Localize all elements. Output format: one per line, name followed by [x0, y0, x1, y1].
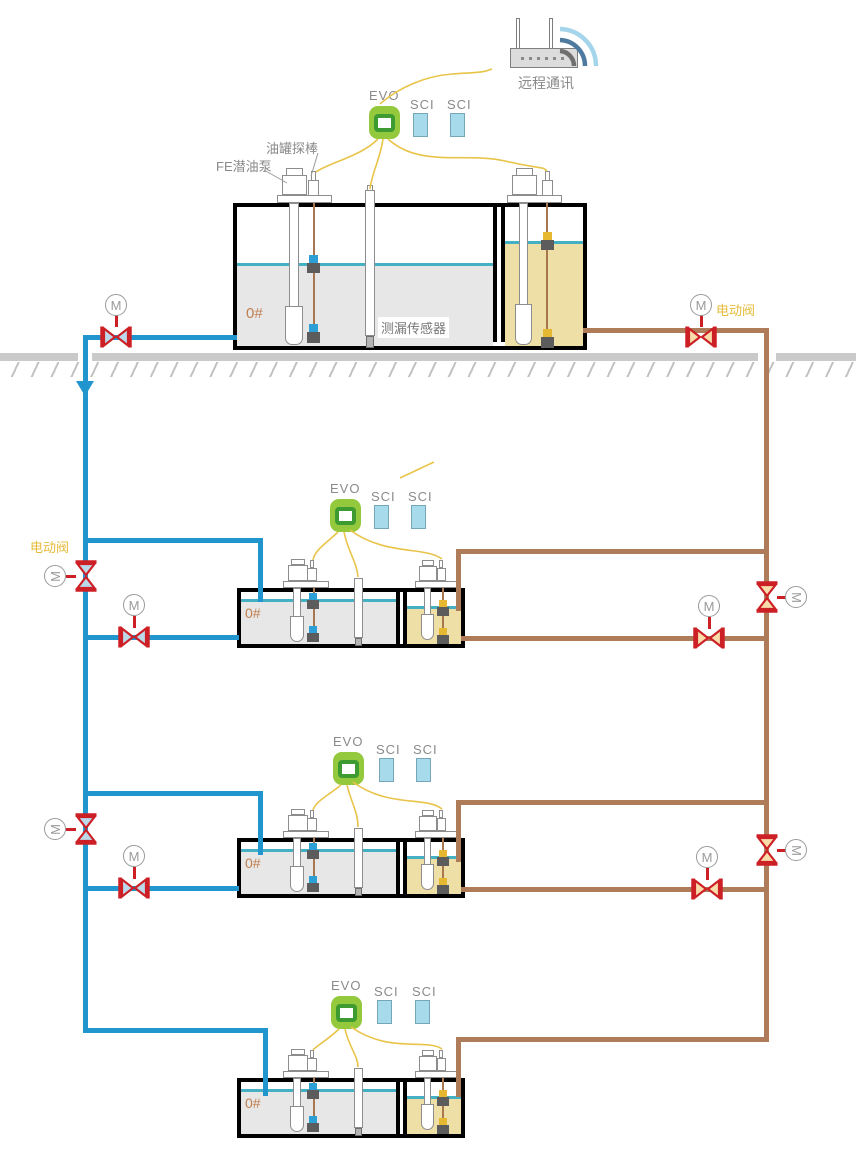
electric-valve-label-1: 电动阀	[716, 300, 755, 319]
interface-4b-label: SCI	[412, 984, 437, 999]
interface-4b	[415, 1000, 430, 1024]
tank-1-leak-sensor-label: 测漏传感器	[378, 317, 449, 338]
motor-9: M	[785, 839, 807, 861]
evo-screen	[338, 760, 359, 778]
motor-5: M	[785, 586, 807, 608]
tank-1-right-pump-body	[515, 304, 532, 345]
tank-4-right-float-top-base	[437, 1097, 449, 1106]
tank-4-fuel-grade: 0#	[245, 1095, 261, 1111]
ground-line-right	[776, 353, 856, 361]
motor-1: M	[105, 294, 127, 316]
tank-2-leak-sensor-tip	[355, 638, 362, 646]
tank-1-left-pump-tube	[289, 203, 299, 307]
motor-valve-10	[691, 878, 723, 900]
evo-screen	[336, 1004, 357, 1022]
gasoline-pipe-tank1-horizontal	[583, 328, 769, 333]
diesel-pipe-tank3-suction	[83, 886, 239, 891]
tank-2-right-probe-fitting	[437, 568, 446, 581]
tank-4-left-float-bottom-base	[307, 1123, 319, 1132]
interface-2b-label: SCI	[408, 489, 433, 504]
tank-2-gasoline-liquid	[407, 609, 461, 644]
ground-line-left	[0, 353, 78, 361]
tank-1-right-pump-tube	[519, 203, 528, 305]
tank-2-right-pump-head	[419, 566, 437, 581]
interface-2a-label: SCI	[371, 489, 396, 504]
tank-3-right-float-bottom-base	[437, 885, 449, 894]
tank-3-right-float-top-base	[437, 857, 449, 866]
tank-4-divider-wall-a	[396, 1082, 400, 1134]
tank-4-right-float-bottom-base	[437, 1125, 449, 1134]
console-2-label: EVO	[330, 481, 360, 496]
interface-3b-label: SCI	[413, 742, 438, 757]
tank-3-right-pump-head-cap	[422, 810, 434, 816]
tank-3-left-pump-head-cap	[291, 809, 305, 815]
tank-1-right-probe-wire	[546, 203, 548, 343]
motor-valve-6	[693, 627, 725, 649]
router-status-lights	[521, 57, 567, 60]
tank-1-left-probe-fitting	[308, 180, 319, 196]
tank-1-right-pump-head-cap	[516, 168, 533, 176]
tank-4-left-probe-fitting	[307, 1058, 317, 1071]
diesel-pipe-main-riser	[83, 335, 88, 1033]
tank-3-right-pump-manifold	[415, 831, 459, 838]
tank-2-left-pump-manifold	[283, 581, 329, 588]
tank-3-left-probe-pin	[310, 810, 314, 818]
console-3-label: EVO	[333, 734, 363, 749]
interface-1a	[413, 113, 428, 137]
tank-4-left-pump-head-cap	[291, 1049, 305, 1055]
evo-screen	[335, 507, 356, 525]
tank-2-divider-wall-a	[396, 592, 400, 644]
interface-1b	[450, 113, 465, 137]
tank-1-right-probe-float-bottom-base	[541, 337, 554, 348]
motor-4: M	[123, 594, 145, 616]
fe-pump-label: FE潜油泵	[216, 156, 272, 175]
gasoline-pipe-tank3-fill-horizontal	[456, 800, 766, 805]
gasoline-pipe-main-riser	[764, 328, 769, 1042]
motor-valve-9	[756, 834, 778, 866]
tank-2-right-pump-manifold	[415, 581, 459, 588]
interface-1a-label: SCI	[410, 97, 435, 112]
tank-4-left-pump-manifold	[283, 1071, 329, 1078]
diesel-pipe-tank2-suction	[83, 635, 239, 640]
gasoline-pipe-tank4-horizontal	[456, 1037, 769, 1042]
tank-2-left-float-bottom-base	[307, 633, 319, 642]
tank-3-right-pump-body	[421, 864, 434, 890]
diesel-pipe-tank4-horizontal	[83, 1028, 268, 1033]
motor-valve-5	[756, 581, 778, 613]
tank-1-leak-sensor-tip	[366, 336, 374, 348]
tank-1-right-probe-float-top-base	[541, 240, 554, 250]
tank-4-right-pump-manifold	[415, 1071, 459, 1078]
tank-2-left-float-top-base	[307, 600, 319, 609]
tank-4-right-pump-body	[421, 1104, 434, 1130]
tank-3-gasoline-liquid	[407, 859, 461, 894]
tank-3-right-probe-fitting	[437, 818, 446, 831]
tank-3-left-pump-body	[290, 866, 304, 892]
tank-3-left-float-top-base	[307, 850, 319, 859]
tank-4-left-probe-pin	[310, 1050, 314, 1058]
tank-2-fuel-grade: 0#	[245, 605, 261, 621]
gasoline-pipe-tank2-fill-drop	[456, 549, 461, 611]
tank-1-left-pump-head-cap	[286, 168, 303, 176]
tank-1-right-pump-manifold	[507, 195, 562, 203]
fuel-station-monitoring-diagram: 0# 测漏传感器 0#	[0, 0, 856, 1154]
tank-4-right-pump-head-cap	[422, 1050, 434, 1056]
motor-8: M	[123, 845, 145, 867]
tank-3-left-float-bottom-base	[307, 883, 319, 892]
tank-2-right-pump-head-cap	[422, 560, 434, 566]
tank-3-left-pump-head	[288, 815, 308, 831]
console-3-evo	[333, 752, 364, 785]
tank-3-leak-sensor-tube	[354, 828, 363, 888]
tank-3-right-pump-head	[419, 816, 437, 831]
motor-valve-8	[118, 877, 150, 899]
console-4-evo	[331, 996, 362, 1029]
router-antenna-right	[549, 18, 553, 50]
tank-2-leak-sensor-tube	[354, 578, 363, 638]
tank-2-right-pump-body	[421, 614, 434, 640]
tank-4-right-probe-fitting	[437, 1058, 446, 1071]
tank-1-left-probe-float-bottom-base	[307, 332, 320, 343]
valve-7-stem	[66, 828, 76, 831]
motor-10: M	[696, 846, 718, 868]
tank-2-right-float-bottom-base	[437, 635, 449, 644]
tank-2-left-probe-pin	[310, 560, 314, 568]
tank-4-right-pump-head	[419, 1056, 437, 1071]
motor-valve-4	[118, 626, 150, 648]
tank-4-gasoline-level-line	[407, 1096, 461, 1099]
tank-2-left-pump-head	[288, 565, 308, 581]
tank-1-left-pump-manifold	[277, 195, 332, 203]
router-antenna-left	[516, 18, 520, 50]
tank-probe-label: 油罐探棒	[266, 138, 318, 157]
tank-1-divider-wall-a	[493, 207, 497, 342]
tank-4-left-pump-body	[290, 1106, 304, 1132]
remote-comm-label: 远程通讯	[518, 73, 574, 93]
tank-4-leak-sensor-tube	[354, 1068, 363, 1128]
interface-3a-label: SCI	[376, 742, 401, 757]
diesel-pipe-tank4-drop	[263, 1028, 268, 1096]
tank-2-gasoline-level-line	[407, 606, 461, 609]
motor-valve-1	[100, 326, 132, 348]
valve-3-stem	[66, 575, 76, 578]
diesel-pipe-tank3-fill-horizontal	[83, 791, 263, 796]
tank-3-gasoline-level-line	[407, 856, 461, 859]
tank-4-leak-sensor-tip	[355, 1128, 362, 1136]
motor-2: M	[690, 294, 712, 316]
interface-1b-label: SCI	[447, 97, 472, 112]
console-2-evo	[330, 499, 361, 532]
tank-1-leak-sensor-cap	[367, 185, 373, 191]
console-4-label: EVO	[331, 978, 361, 993]
tank-2-left-pump-body	[290, 616, 304, 642]
interface-3b	[416, 758, 431, 782]
tank-2-left-probe-fitting	[307, 568, 317, 581]
motor-3: M	[44, 565, 66, 587]
interface-4a-label: SCI	[374, 984, 399, 999]
gasoline-pipe-tank2-fill-horizontal	[456, 549, 766, 554]
tank-3-left-pump-manifold	[283, 831, 329, 838]
tank-1-left-pump-head	[282, 175, 307, 195]
tank-1-right-probe-pin	[545, 171, 550, 181]
tank-1-left-probe-pin	[311, 171, 316, 181]
tank-1-right-probe-fitting	[542, 180, 553, 196]
interface-4a	[377, 1000, 392, 1024]
tank-4-gasoline-liquid	[407, 1099, 461, 1134]
diesel-pipe-tank2-fill-horizontal	[83, 538, 263, 543]
tank-2-right-probe-pin	[439, 560, 443, 568]
interface-3a	[379, 758, 394, 782]
diesel-flow-arrow	[76, 381, 94, 396]
motor-6: M	[698, 595, 720, 617]
ground-line-middle	[92, 353, 758, 361]
motor-valve-7	[75, 813, 97, 845]
gasoline-pipe-tank3-fill-drop	[456, 800, 461, 862]
motor-7: M	[44, 818, 66, 840]
tank-3-right-probe-pin	[439, 810, 443, 818]
tank-1-right-pump-head	[512, 175, 537, 195]
tank-2-right-float-top-base	[437, 607, 449, 616]
tank-4-right-probe-pin	[439, 1050, 443, 1058]
motor-valve-2	[685, 326, 717, 348]
tank-1-fuel-grade: 0#	[246, 305, 263, 322]
ground-hatching	[0, 362, 856, 377]
evo-screen	[374, 114, 395, 132]
tank-4-left-float-top-base	[307, 1090, 319, 1099]
tank-3-left-probe-fitting	[307, 818, 317, 831]
interface-2a	[374, 505, 389, 529]
console-1-evo	[369, 106, 400, 139]
tank-3-fuel-grade: 0#	[245, 855, 261, 871]
tank-1-left-probe-float-top-base	[307, 263, 320, 273]
diesel-pipe-tank2-fill-drop	[258, 538, 263, 602]
motor-valve-3	[75, 560, 97, 592]
electric-valve-label-2: 电动阀	[30, 537, 69, 556]
diesel-pipe-tank3-fill-drop	[258, 791, 263, 855]
tank-3-divider-wall-a	[396, 842, 400, 894]
tank-4-left-pump-head	[288, 1055, 308, 1071]
console-1-label: EVO	[369, 88, 399, 103]
tank-3-leak-sensor-tip	[355, 888, 362, 896]
interface-2b	[411, 505, 426, 529]
tank-1-left-pump-body	[285, 306, 303, 345]
tank-2-left-pump-head-cap	[291, 559, 305, 565]
tank-1-leak-sensor-tube	[365, 190, 375, 336]
gasoline-pipe-tank4-drop	[456, 1037, 461, 1097]
